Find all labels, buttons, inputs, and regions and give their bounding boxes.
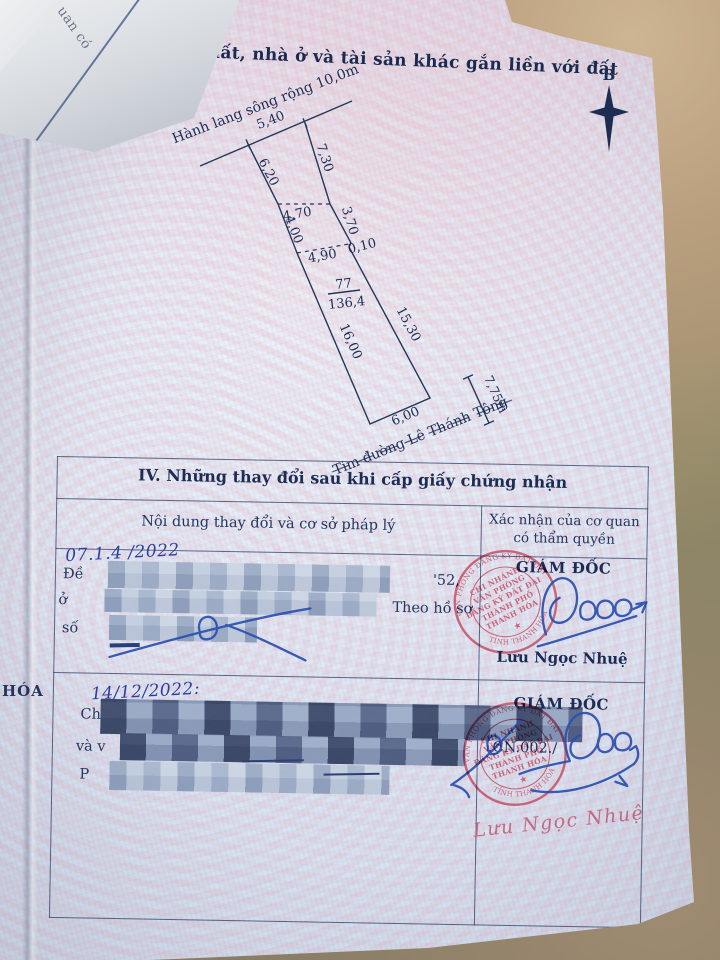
dim-620: 6,20 (255, 156, 282, 189)
row2-text-vav: và v (76, 738, 106, 755)
table-border-bottom (49, 917, 641, 929)
section4-title: IV. Những thay đổi sau khi cấp giấy chứn… (57, 464, 649, 493)
section4-table: IV. Những thay đổi sau khi cấp giấy chứn… (49, 456, 649, 928)
row1-text-de: Đề (63, 566, 84, 582)
dim-600: 6,00 (389, 404, 422, 429)
redaction-block (108, 561, 390, 593)
redaction-block (109, 761, 389, 795)
dim-010: 0,10 (346, 236, 378, 258)
folded-paper-text: uan có (54, 4, 95, 53)
dim-490: 4,90 (307, 247, 338, 267)
row1-text-o: ở (58, 592, 67, 608)
margin-text: HÓA (2, 682, 44, 700)
table-border-title-bottom (56, 498, 648, 510)
row1-signature-flourish (103, 595, 319, 674)
row2-director-signature (517, 702, 649, 814)
parcel-area: 136,4 (327, 294, 366, 313)
row2-text-ch: Ch (80, 706, 101, 722)
parcel-label: 77 136,4 (327, 276, 366, 313)
row1-signer-name: Lưu Ngọc Nhuệ (478, 647, 645, 668)
row1-director-signature (532, 564, 649, 656)
north-label: B (603, 66, 616, 84)
paper-crease (22, 120, 38, 960)
parcel-number: 77 (335, 276, 353, 293)
row1-text-so: số (62, 620, 79, 636)
row2-text-p: P (79, 766, 89, 782)
column-header-right-line1: Xác nhận của cơ quan (481, 511, 648, 531)
column-header-left: Nội dung thay đổi và cơ sở pháp lý (56, 512, 481, 535)
stamp-star: ★ (512, 620, 523, 632)
north-arrow-icon: B (589, 66, 629, 152)
dim-370: 3,70 (338, 205, 361, 237)
